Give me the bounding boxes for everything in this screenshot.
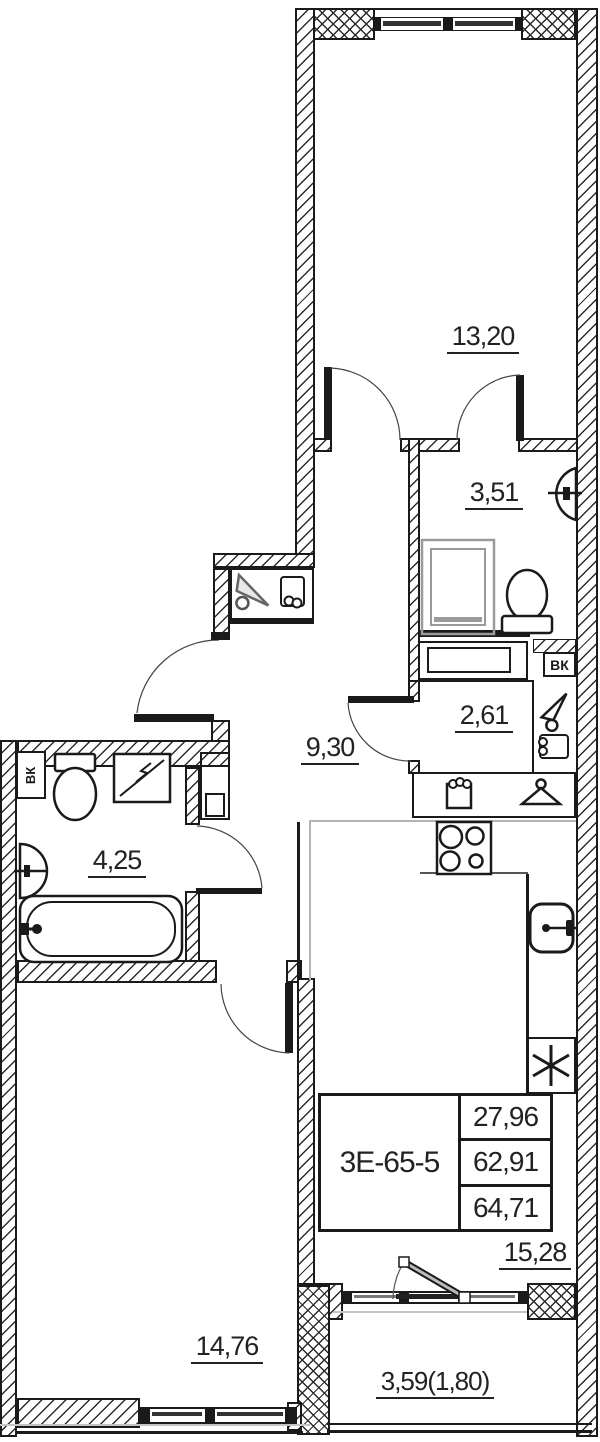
counter-line [420, 872, 528, 874]
balcony-sill-line [333, 1311, 527, 1313]
room-label-hallway: 9,30 [285, 733, 375, 765]
wall-entry [17, 740, 230, 767]
kitchen-zone-line [309, 820, 576, 822]
window-jamb [205, 1407, 215, 1424]
counter-edge [418, 630, 530, 637]
shower-icon [422, 540, 494, 634]
door-swing-arc [197, 826, 262, 888]
unit-area-row: 62,91 [461, 1138, 550, 1183]
balcony-outer-line [327, 1423, 592, 1425]
area-value: 9,30 [301, 733, 360, 765]
door-room-top-left [324, 367, 400, 440]
unit-info-table: 3Е-65-5 27,96 62,91 64,71 [318, 1093, 553, 1232]
vent-shaft-text: ВК [23, 766, 38, 783]
room-label-storage: 2,61 [439, 701, 529, 733]
window-glazing [152, 1412, 202, 1416]
area-value: 3,59(1,80) [376, 1368, 495, 1399]
unit-area-row: 64,71 [461, 1184, 550, 1229]
wall [295, 8, 315, 568]
room-label-bathroom-top: 3,51 [449, 478, 539, 510]
area-value: 15,28 [499, 1238, 572, 1270]
window-glazing [455, 21, 513, 26]
window-jamb [285, 1407, 297, 1424]
door-swing-arc [457, 375, 520, 440]
room-label-kitchen-living: 15,28 [490, 1238, 580, 1270]
vent-shaft-label: ВК [543, 652, 576, 677]
wall [213, 553, 315, 568]
room-label-top: 13,20 [428, 322, 538, 354]
window-jamb [515, 17, 523, 31]
window-jamb [443, 17, 453, 31]
door-swing-arc [137, 640, 219, 713]
window-glazing [354, 1295, 397, 1298]
unit-area-row: 27,96 [461, 1096, 550, 1138]
window-jamb [373, 17, 381, 31]
kitchen-zone-line [309, 820, 311, 980]
area-value: 3,51 [465, 478, 524, 510]
shaft-hatch [533, 639, 576, 653]
vent-shaft-label: ВК [16, 751, 46, 799]
stove-icon [437, 822, 491, 874]
unit-code-cell: 3Е-65-5 [321, 1096, 458, 1229]
unit-areas-column: 27,96 62,91 64,71 [458, 1096, 550, 1229]
window-jamb [343, 1291, 352, 1304]
window-jamb [518, 1291, 527, 1304]
fridge-outline [526, 1037, 576, 1094]
wall [211, 720, 230, 742]
wall-hook-icon [538, 691, 577, 734]
area-value: 4,25 [88, 846, 147, 878]
wall [17, 960, 217, 983]
wall [297, 978, 315, 1285]
wall [185, 891, 200, 967]
window-glazing [383, 21, 441, 26]
window-outer-line [373, 8, 523, 10]
sink-icon [14, 844, 47, 898]
wardrobe-outline [230, 568, 314, 624]
wall [213, 568, 230, 638]
glove-box-icon [539, 735, 568, 758]
room-label-room-bottom: 14,76 [174, 1332, 280, 1364]
door-room-bottom [221, 983, 293, 1053]
door-room-top-right [457, 375, 524, 441]
balcony-door-closed-leaf [396, 1294, 460, 1299]
door-bathroom-left [196, 826, 262, 894]
outer-line [17, 1431, 303, 1434]
area-value: 2,61 [455, 701, 514, 733]
unit-code: 3Е-65-5 [340, 1146, 440, 1180]
door-swing-arc [330, 368, 400, 440]
kitchen-sink-icon [530, 904, 577, 952]
wardrobe-strip-outline [412, 772, 576, 818]
wall-outer-right [576, 8, 598, 1437]
wall [313, 438, 332, 452]
wall [518, 438, 578, 452]
partition [297, 822, 300, 980]
wall [527, 1283, 576, 1320]
room-label-balcony: 3,59(1,80) [360, 1368, 510, 1399]
hall-cabinet-inner [205, 793, 225, 817]
window-glazing [470, 1295, 515, 1298]
bathtub-icon [20, 896, 182, 962]
balcony-outer-line [327, 1430, 592, 1433]
wall [521, 8, 576, 40]
wall [313, 8, 375, 40]
area-value: 13,20 [447, 322, 520, 354]
door-swing-arc [221, 984, 289, 1053]
window-glazing [217, 1412, 283, 1416]
floor-plan-canvas: ВК ВК [0, 0, 600, 1442]
sill-line [0, 1424, 310, 1426]
wall-outer-left [0, 740, 17, 1437]
vent-shaft-text: ВК [550, 657, 569, 673]
area-value: 14,76 [191, 1332, 264, 1364]
cabinet-inner [427, 647, 511, 673]
toilet-icon [502, 570, 552, 633]
window-jamb [140, 1407, 150, 1424]
door-entrance [134, 632, 230, 722]
wall [185, 767, 200, 825]
room-label-bathroom-left: 4,25 [72, 846, 162, 878]
